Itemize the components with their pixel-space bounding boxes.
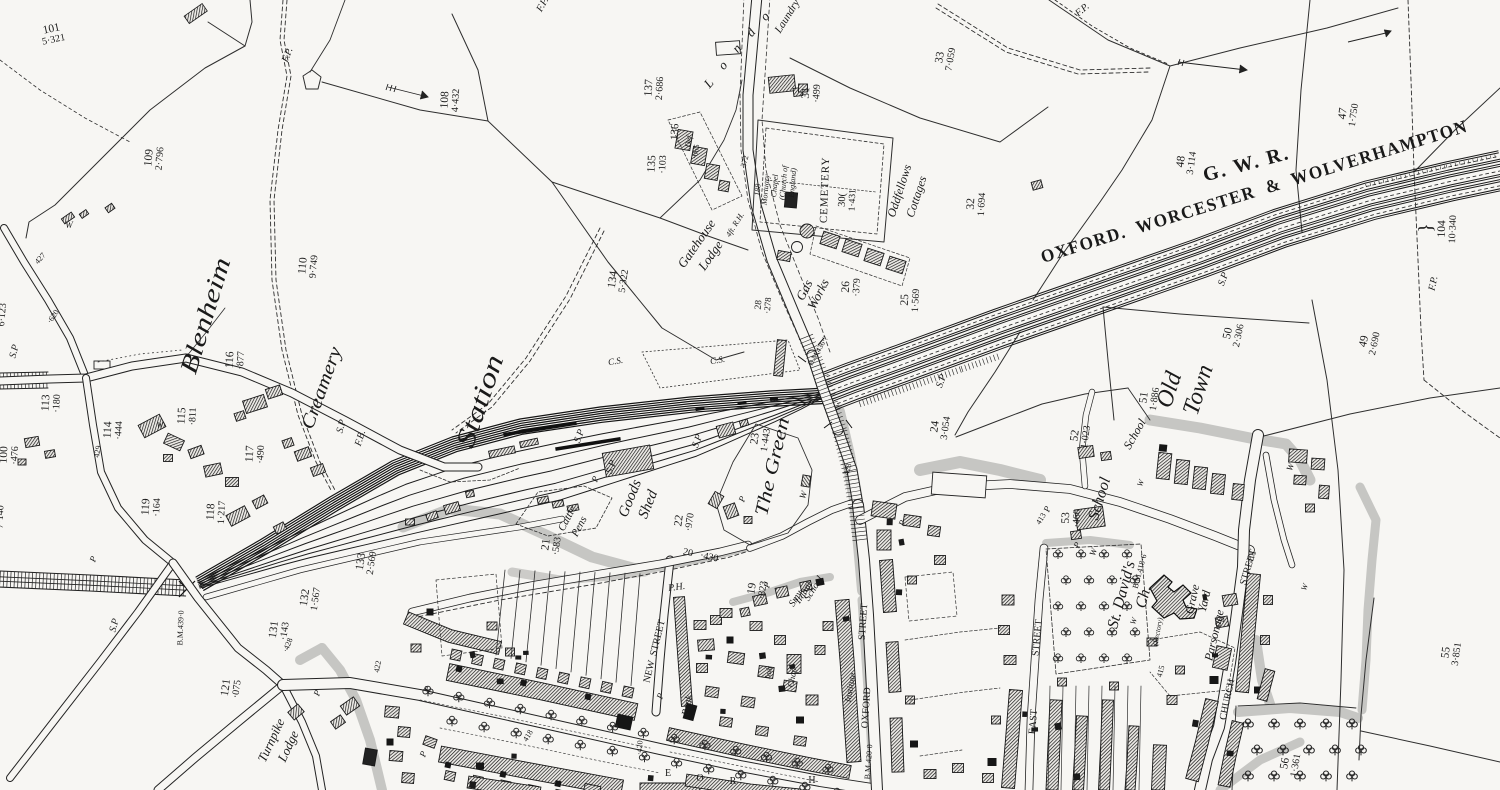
svg-text:}: } <box>1415 223 1437 233</box>
svg-text:R: R <box>730 776 737 787</box>
svg-text:119·164: 119·164 <box>140 497 163 516</box>
svg-text:CEMETERY: CEMETERY <box>818 156 832 223</box>
svg-text:7·140: 7·140 <box>0 505 6 529</box>
svg-text:·420: ·420 <box>634 740 644 755</box>
svg-text:116·877: 116·877 <box>224 350 247 369</box>
svg-text:117·490: 117·490 <box>244 444 267 463</box>
svg-text:B.M.439·0: B.M.439·0 <box>175 610 185 645</box>
svg-text:1181·217: 1181·217 <box>204 500 228 524</box>
svg-text:1084·432: 1084·432 <box>438 88 462 112</box>
svg-text:114·444: 114·444 <box>102 420 125 439</box>
svg-text:115·811: 115·811 <box>176 407 199 426</box>
svg-text:100·476: 100·476 <box>0 445 21 464</box>
svg-text:E: E <box>665 768 671 779</box>
svg-text:121·075: 121·075 <box>219 678 244 699</box>
svg-text:136: 136 <box>669 123 682 141</box>
svg-text:O: O <box>696 773 703 784</box>
svg-text:H: H <box>808 775 815 786</box>
svg-text:135·103: 135·103 <box>646 154 669 173</box>
svg-text:1372·686: 1372·686 <box>642 76 666 100</box>
svg-text:113·180: 113·180 <box>40 393 63 412</box>
svg-text:EAST: EAST <box>1027 709 1040 735</box>
svg-text:188: 188 <box>753 183 763 196</box>
